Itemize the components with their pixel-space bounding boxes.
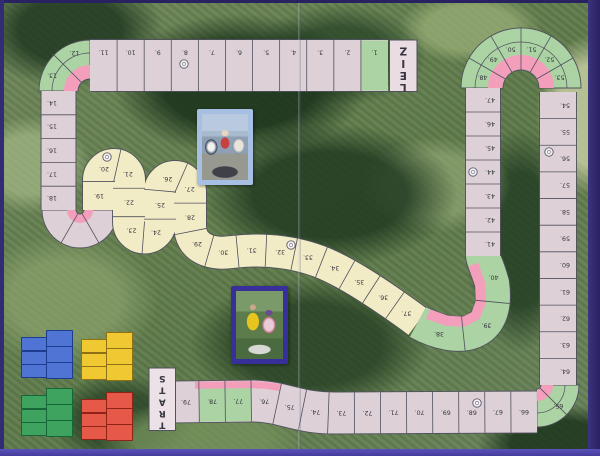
space-number: 49. (488, 56, 498, 63)
space-number: 33. (303, 254, 313, 261)
space-number: 48. (477, 74, 487, 81)
space-number: 38. (434, 330, 444, 337)
game-card-red[interactable] (81, 399, 108, 413)
circle-marker-icon (103, 153, 111, 161)
circle-marker-icon (287, 241, 295, 249)
space-number: 17. (47, 170, 57, 177)
card-stack-blue[interactable] (21, 330, 74, 386)
space-number: E (400, 69, 407, 81)
game-card-blue[interactable] (46, 362, 73, 379)
space-number: 75. (285, 403, 295, 410)
game-card-green[interactable] (21, 409, 48, 423)
space-number: 35. (354, 278, 364, 285)
space-number: 54. (560, 101, 570, 108)
space-number: 27. (185, 185, 195, 192)
game-card-green[interactable] (46, 420, 73, 437)
space-number: 32. (275, 248, 285, 255)
space-number: 13. (47, 71, 57, 78)
space-number: 10. (126, 48, 136, 55)
space-number: 76. (259, 398, 269, 405)
space-number: 55. (560, 128, 570, 135)
space-number: 21. (123, 170, 133, 177)
space-number: T (158, 385, 165, 395)
space-number: 46. (485, 120, 495, 127)
space-number: 62. (560, 314, 570, 321)
space-number: 40. (489, 274, 499, 281)
finish: ZIEL (390, 40, 418, 93)
game-card-red[interactable] (106, 392, 133, 409)
space-number: 63. (560, 341, 570, 348)
space-number: A (159, 396, 166, 406)
space-number: 74. (310, 408, 320, 415)
game-card-yellow[interactable] (81, 366, 108, 380)
track-segment-bottom-row: 66.67.68.69.70.71.72.73.74.75.76.77.78.7… (173, 381, 537, 434)
space-number: 42. (485, 216, 495, 223)
space-number: T (158, 420, 165, 430)
space-number: 8. (182, 48, 188, 55)
space-number: 41. (485, 240, 495, 247)
space-number: 73. (336, 409, 346, 416)
space-number: 18. (47, 194, 57, 201)
space-number: 56. (560, 155, 570, 162)
track-segment-right-outer-column: 54.55.56.57.58.59.60.61.62.63.64. (540, 92, 576, 385)
space-number: 79. (181, 398, 191, 405)
game-card-red[interactable] (81, 413, 108, 427)
space-number: 6. (236, 48, 242, 55)
game-card-red[interactable] (81, 426, 108, 440)
space-number: L (400, 81, 407, 93)
game-board: 48.49.50.51.52.53.12.13.65.1.2.3.4.5.6.7… (0, 0, 600, 456)
circle-marker-icon (545, 148, 553, 156)
space-number: S (159, 373, 165, 383)
track-segment-left-u-turn (42, 210, 118, 248)
frame-right (588, 0, 600, 456)
space-number: 34. (329, 264, 339, 271)
space-number: 45. (485, 144, 495, 151)
game-card-red[interactable] (106, 408, 133, 425)
space-number: 28. (185, 213, 195, 220)
space-number: 3. (317, 48, 323, 55)
game-card-yellow[interactable] (106, 332, 133, 349)
space-number: 14. (47, 99, 57, 106)
frame-bottom (0, 449, 600, 456)
space-number: 68. (467, 408, 477, 415)
circle-marker-icon (473, 399, 481, 407)
space-number: 30. (218, 249, 228, 256)
start: START (149, 368, 176, 431)
circle-marker-icon (180, 60, 188, 68)
space-number: 11. (99, 48, 109, 55)
space-number: 23. (126, 226, 136, 233)
space-number: 1. (371, 48, 377, 55)
circle-marker-icon (473, 399, 481, 407)
space-number: 59. (560, 234, 570, 241)
space-number: 16. (47, 146, 57, 153)
space-number: 60. (560, 261, 570, 268)
game-card-blue[interactable] (21, 351, 48, 365)
game-card-yellow[interactable] (106, 364, 133, 381)
space-divider (199, 381, 200, 422)
space-number: R (159, 408, 166, 418)
game-card-yellow[interactable] (106, 348, 133, 365)
space-number: 50. (506, 45, 516, 52)
game-card-green[interactable] (46, 404, 73, 421)
space-number: 12. (69, 49, 79, 56)
space-number: 53. (555, 74, 565, 81)
space-number: I (401, 57, 405, 69)
frame-left (0, 0, 4, 456)
track-segment-left-column: 14.15.16.17.18. (42, 91, 76, 210)
space-number: 36. (378, 293, 388, 300)
card-stack-red[interactable] (81, 392, 134, 448)
circle-marker-icon (469, 168, 477, 176)
colored-cell (426, 263, 486, 327)
space-number: 39. (481, 322, 491, 329)
space-divider (251, 381, 252, 422)
track-segment-top-left-corner: 12.13. (39, 40, 90, 91)
game-card-blue[interactable] (46, 330, 73, 347)
space-divider (225, 381, 226, 422)
track-segment-hairpin-turn: 48.49.50.51.52.53. (461, 28, 581, 88)
space-number: 25. (155, 201, 165, 208)
game-card-blue[interactable] (21, 364, 48, 378)
space-number: 78. (207, 398, 217, 405)
circle-marker-icon (545, 148, 553, 156)
space-number: 65. (553, 402, 563, 409)
space-number: 71. (389, 409, 399, 416)
space-number: 9. (155, 48, 161, 55)
game-card-green[interactable] (21, 395, 48, 409)
game-card-green[interactable] (21, 422, 48, 436)
space-number: Z (399, 45, 407, 57)
cyclists-photo-card-1[interactable] (197, 109, 253, 185)
card-stack-green[interactable] (21, 388, 74, 444)
cyclists-photo-card-2[interactable] (231, 286, 288, 364)
circle-marker-icon (103, 153, 111, 161)
game-card-blue[interactable] (21, 337, 48, 351)
space-number: 52. (544, 56, 554, 63)
space-number: 64. (560, 368, 570, 375)
space-number: 69. (441, 408, 451, 415)
game-card-blue[interactable] (46, 346, 73, 363)
space-number: 2. (344, 48, 350, 55)
space-number: 24. (151, 228, 161, 235)
space-number: 77. (233, 397, 243, 404)
frame-top (0, 0, 600, 3)
space-number: 15. (47, 123, 57, 130)
space-number: 66. (519, 408, 529, 415)
space-number: 31. (247, 247, 257, 254)
space-number: 37. (402, 310, 412, 317)
space-number: 51. (526, 45, 536, 52)
space-number: 22. (124, 198, 134, 205)
space-number: 7. (209, 48, 215, 55)
game-card-yellow[interactable] (81, 353, 108, 367)
circle-marker-icon (180, 60, 188, 68)
space-number: 70. (415, 409, 425, 416)
card-stack-yellow[interactable] (81, 332, 134, 388)
space-number: 43. (485, 192, 495, 199)
space-number: 29. (192, 240, 202, 247)
space-number: 4. (290, 48, 296, 55)
space-number: 5. (263, 48, 269, 55)
track-segment-right-bend: 38.39.40. (418, 256, 510, 351)
circle-marker-icon (469, 168, 477, 176)
game-card-green[interactable] (46, 388, 73, 405)
track-segment-top-row: 1.2.3.4.5.6.7.8.9.10.11. (90, 40, 388, 91)
game-card-yellow[interactable] (81, 339, 108, 353)
colored-cell (361, 41, 388, 91)
space-number: 44. (485, 168, 495, 175)
space-number: 61. (560, 288, 570, 295)
game-card-red[interactable] (106, 424, 133, 441)
space-number: 26. (162, 175, 172, 182)
circle-marker-icon (287, 241, 295, 249)
space-number: 47. (485, 96, 495, 103)
space-number: 67. (493, 408, 503, 415)
board-fold-line (298, 3, 301, 449)
space-number: 19. (94, 192, 104, 199)
space-number: 20. (99, 165, 109, 172)
space-number: 58. (560, 208, 570, 215)
space-number: 72. (362, 409, 372, 416)
space-number: 57. (560, 181, 570, 188)
track-segment-bottom-right-corner: 65. (537, 385, 579, 427)
